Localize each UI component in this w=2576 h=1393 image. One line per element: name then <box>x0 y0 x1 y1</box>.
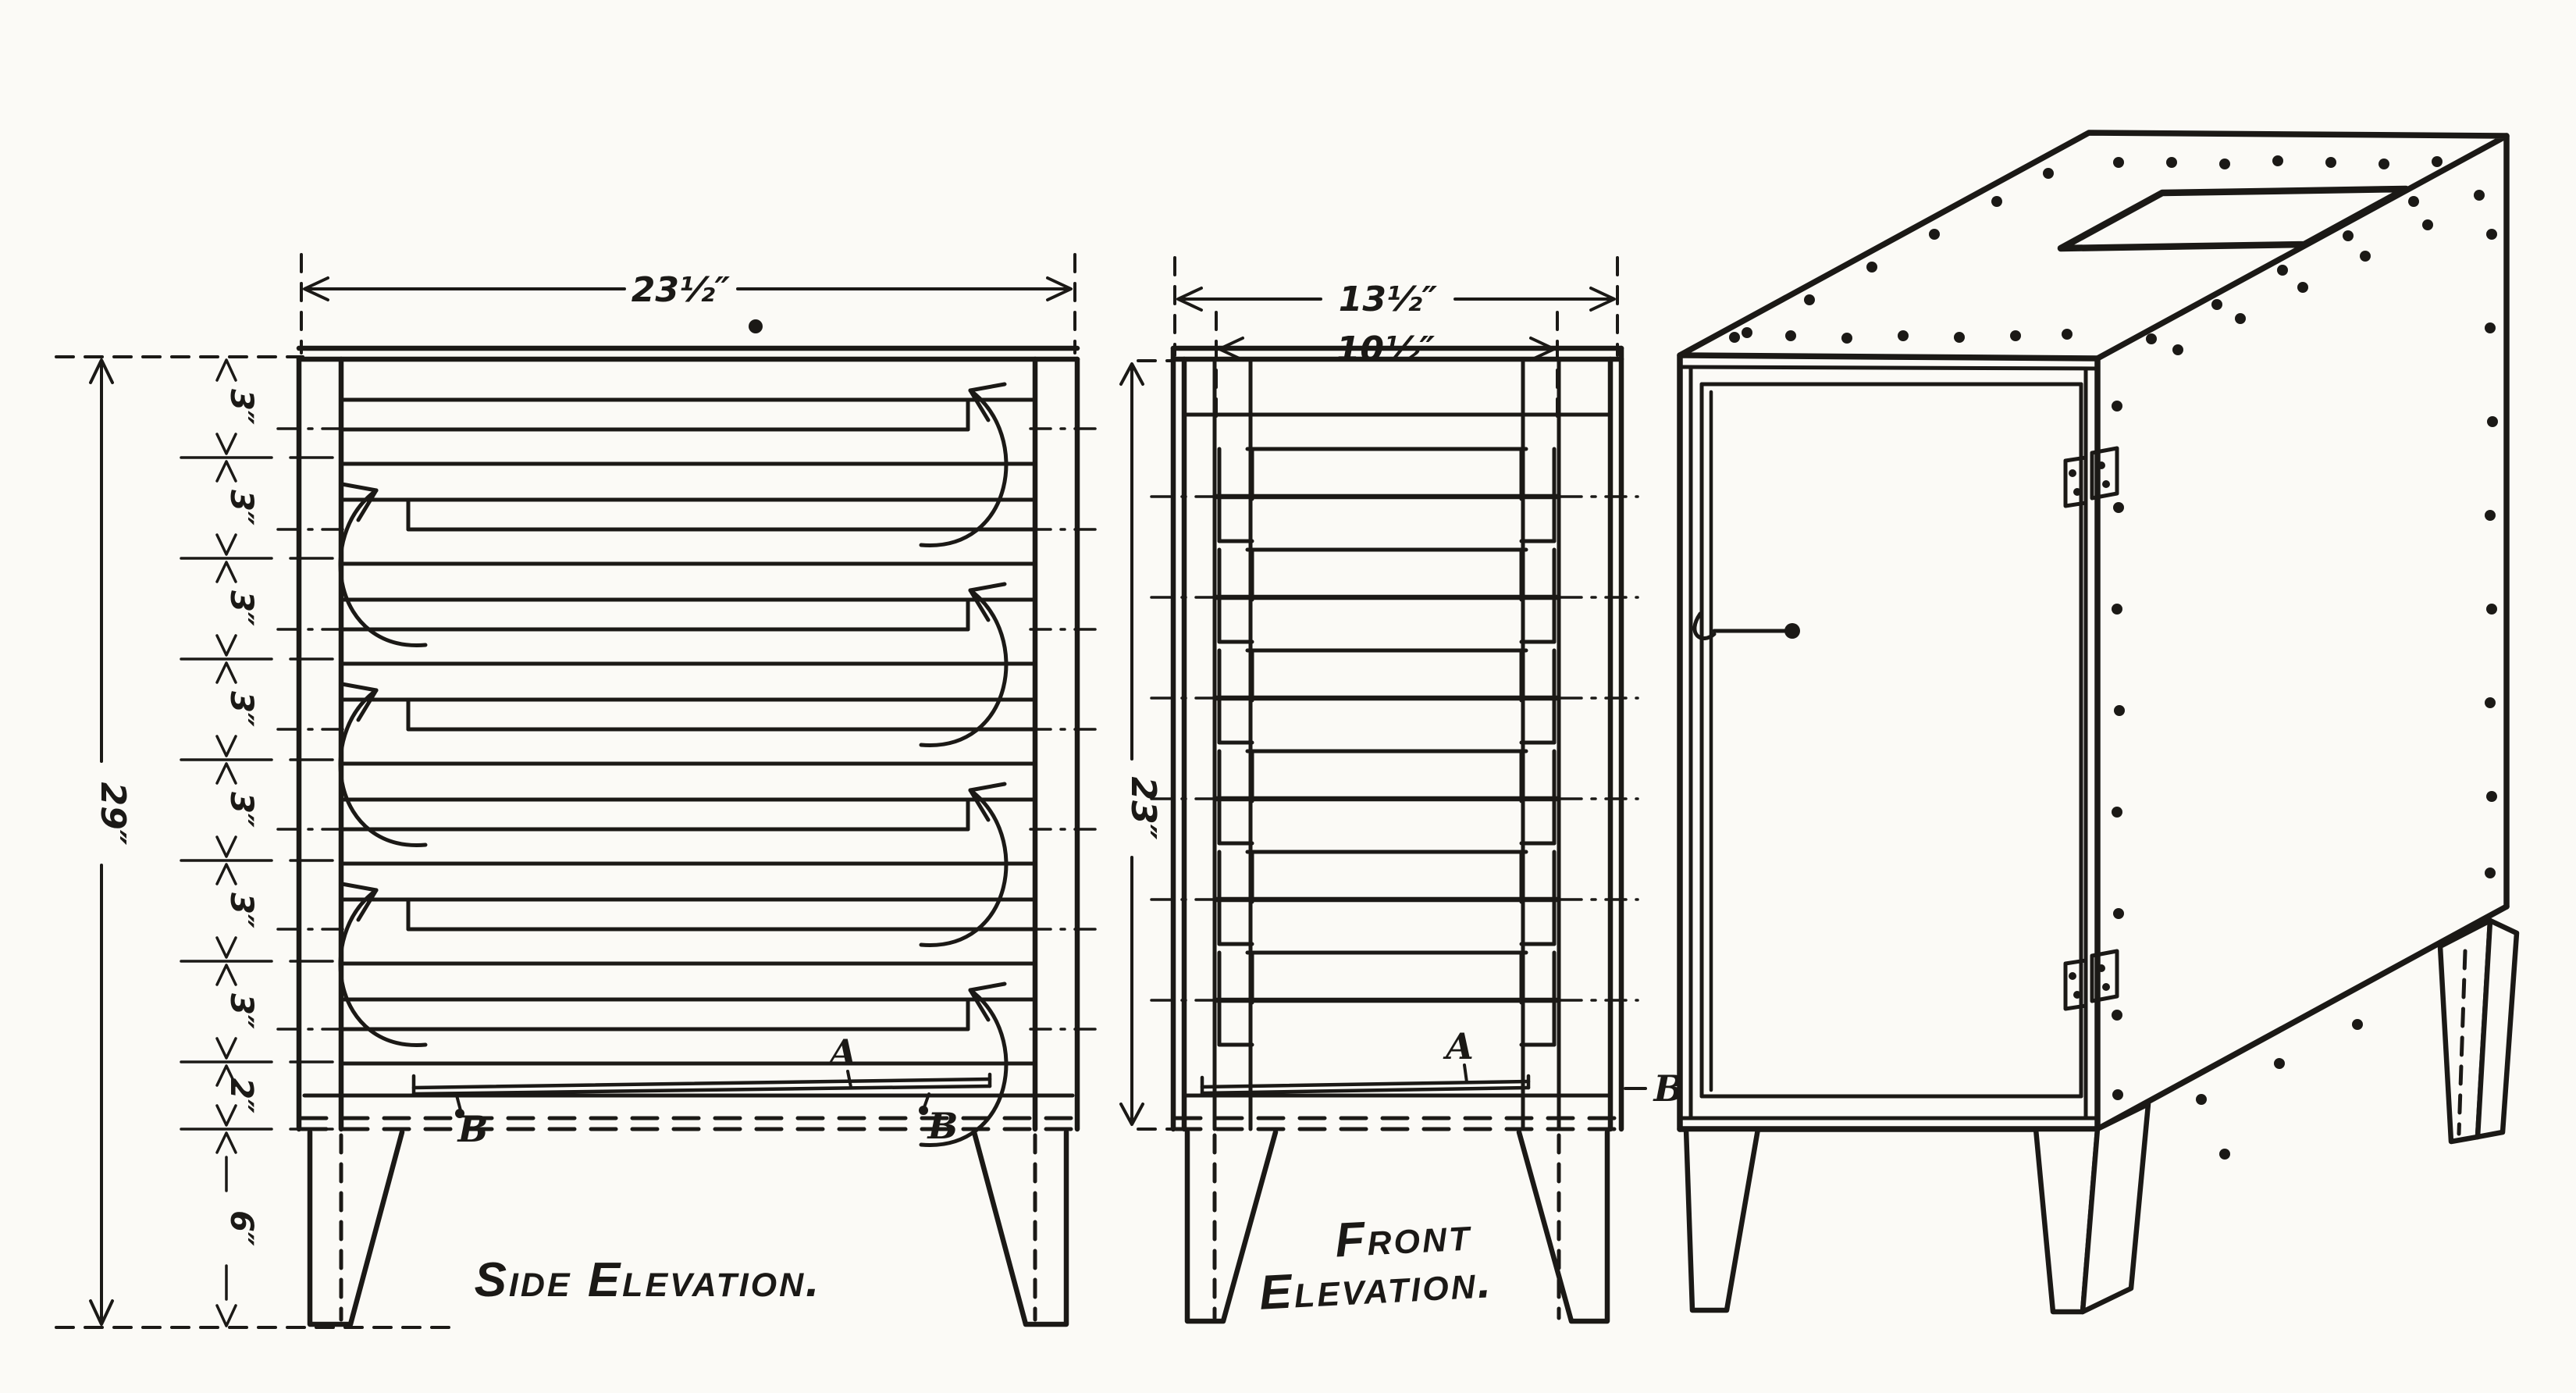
side-width-dimension: 23½″ <box>301 255 1075 353</box>
front-elevation-title: Front Elevation. <box>1255 1206 1494 1320</box>
front-width-dimensions: 13½″ 10½″ <box>1175 258 1617 420</box>
side-elevation: 29″ 3″ 3″ 3″ 3″ 3″ 3″ 3″ 2″ 6″ 23½″ <box>56 255 1098 1327</box>
dim-label-23: 23″ <box>1123 777 1163 840</box>
side-shelf-lines <box>341 400 1035 1063</box>
nail-dots <box>1729 155 2498 1160</box>
chain-label-7: 2″ <box>223 1078 259 1113</box>
drawing-sheet: 29″ 3″ 3″ 3″ 3″ 3″ 3″ 3″ 2″ 6″ 23½″ <box>0 0 2576 1393</box>
perspective-view <box>1680 133 2517 1312</box>
door-hinge-bottom <box>2065 951 2117 1009</box>
chain-label-5: 3″ <box>223 892 259 928</box>
cabinet-front-face <box>1680 355 2097 1129</box>
perspective-front-legs <box>1686 1104 2148 1312</box>
chain-label-0: 3″ <box>223 389 259 425</box>
part-label-b-right: B <box>927 1105 959 1147</box>
side-tray-hooks: B B <box>455 1094 958 1150</box>
chain-label-3: 3″ <box>223 691 259 727</box>
side-tray-lines <box>341 400 1035 1029</box>
chain-label-4: 3″ <box>223 792 259 828</box>
front-height-dimension: 23″ <box>1121 361 1171 1129</box>
chain-label-2: 3″ <box>223 590 259 626</box>
part-label-b-left: B <box>457 1108 489 1150</box>
vent-opening <box>2061 189 2406 248</box>
front-title-line2: Elevation. <box>1258 1254 1495 1320</box>
blueprint-canvas: 29″ 3″ 3″ 3″ 3″ 3″ 3″ 3″ 2″ 6″ 23½″ <box>0 0 2576 1393</box>
part-label-a-front: A <box>1443 1025 1474 1067</box>
front-tray-racks <box>1151 449 1638 1045</box>
dim-label-23half: 23½″ <box>632 270 731 310</box>
side-elevation-title: Side Elevation. <box>475 1253 822 1307</box>
chain-label-1: 3″ <box>223 490 259 525</box>
dim-label-29: 29″ <box>93 782 133 846</box>
chain-label-8: 6″ <box>223 1210 259 1246</box>
chain-label-6: 3″ <box>223 993 259 1029</box>
front-elevation: 13½″ 10½″ 23″ <box>1121 258 1684 1321</box>
perspective-back-leg <box>2440 921 2517 1142</box>
door-hinge-top <box>2065 448 2117 506</box>
part-label-a-side: A <box>826 1031 857 1074</box>
cabinet-door <box>1702 384 2081 1096</box>
dim-label-13half: 13½″ <box>1339 280 1438 319</box>
